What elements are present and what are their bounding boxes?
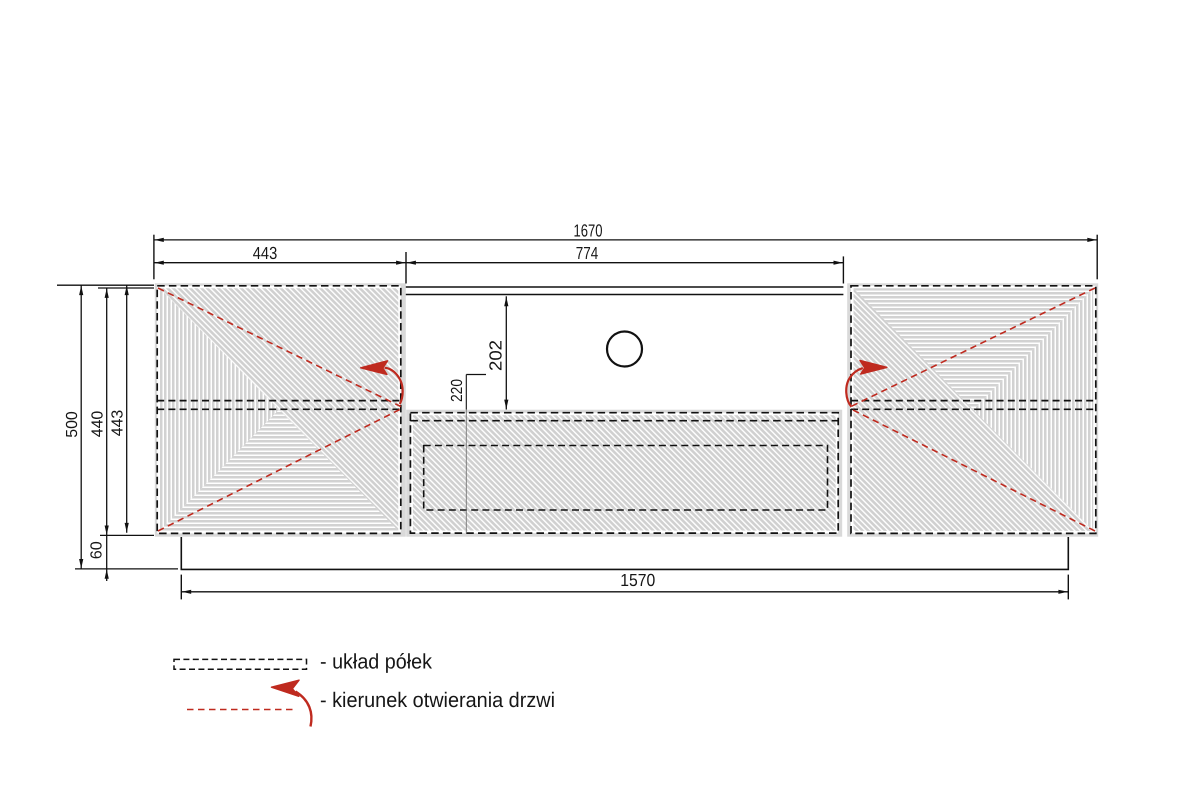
svg-text:- układ półek: - układ półek (320, 651, 432, 674)
svg-text:440: 440 (89, 411, 106, 438)
svg-text:443: 443 (109, 410, 126, 437)
svg-text:774: 774 (576, 243, 599, 263)
svg-text:202: 202 (486, 340, 506, 371)
svg-text:- kierunek otwierania drzwi: - kierunek otwierania drzwi (320, 689, 555, 712)
svg-text:220: 220 (449, 379, 466, 402)
svg-text:60: 60 (89, 541, 106, 559)
svg-text:1570: 1570 (620, 570, 655, 590)
svg-text:500: 500 (64, 411, 81, 438)
svg-text:1670: 1670 (574, 220, 603, 240)
svg-text:443: 443 (253, 243, 278, 263)
